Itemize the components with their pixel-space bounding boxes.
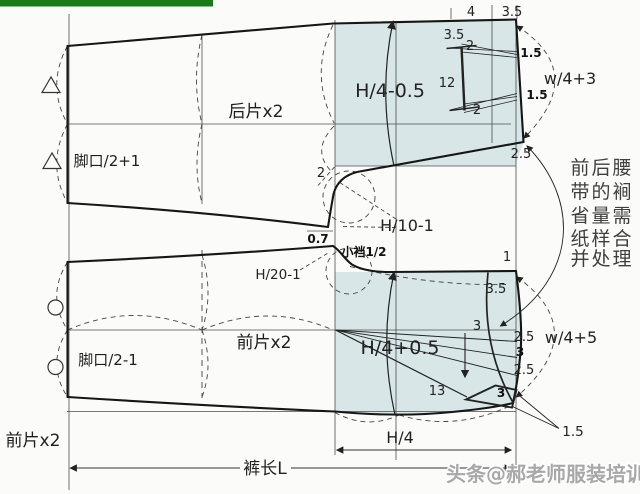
label-front-hem-formula: 脚口/2-1 xyxy=(78,351,138,369)
label-front-side-seg-a: 2.5 xyxy=(514,330,535,345)
dimension-lines xyxy=(71,450,512,468)
label-back-dart-offset: 3.5 xyxy=(444,28,465,43)
hem-ease-leader-lines xyxy=(513,394,560,429)
label-back-width-formula: H/4-0.5 xyxy=(355,80,425,102)
notch-symbols xyxy=(42,77,63,375)
note-line: 省量需 xyxy=(570,205,633,227)
label-front-cut-note: 前片x2 xyxy=(6,431,61,451)
pattern-drafting-canvas: 4 3.5 3.5 2 12 2 1.5 1.5 w/4+3 2.5 H/4-0… xyxy=(0,0,640,494)
label-back-dart-top-width: 2 xyxy=(466,39,474,54)
label-front-pocket-width: 3 xyxy=(497,386,505,400)
label-front-pocket-length: 13 xyxy=(429,384,446,399)
label-back-dart-bottom-width: 2 xyxy=(473,103,481,118)
front-knee-arcs xyxy=(202,255,208,397)
label-trouser-length-dim: 裤长L xyxy=(243,459,287,479)
note-line: 纸样合 xyxy=(570,228,633,250)
label-crotch-drop: 0.7 xyxy=(307,232,328,246)
label-front-hip-dim: 3 xyxy=(473,319,481,334)
label-front-side-seg-b: 3 xyxy=(516,345,524,359)
watermark-text: 头条@郝老师服装培训 xyxy=(446,462,640,486)
back-knee-arcs xyxy=(197,35,203,203)
label-back-waist-dim-4: 4 xyxy=(467,5,475,20)
label-hip-quarter-dim: H/4 xyxy=(386,428,414,447)
label-back-side-take-a: 1.5 xyxy=(520,46,541,60)
label-back-waist-formula: w/4+3 xyxy=(544,69,596,88)
note-line: 前后腰 xyxy=(570,157,633,179)
label-back-piece: 后片x2 xyxy=(229,102,284,122)
label-front-crotch-formula: H/20-1 xyxy=(255,267,300,283)
label-front-hem-ease: 1.5 xyxy=(562,424,583,440)
h20-leader-line xyxy=(300,253,329,271)
label-front-piece: 前片x2 xyxy=(237,333,292,353)
label-back-hem-formula: 脚口/2+1 xyxy=(74,152,141,170)
label-front-dart-offset: 3.5 xyxy=(486,282,507,297)
top-green-bar xyxy=(0,0,213,7)
note-line: 并处理 xyxy=(570,248,633,270)
back-inseam xyxy=(68,203,329,227)
label-front-waist-rise: 1 xyxy=(503,250,511,265)
label-back-dart-length: 12 xyxy=(439,76,456,91)
label-back-side-drop: 2.5 xyxy=(511,147,532,162)
label-back-waist-dim-35: 3.5 xyxy=(502,5,523,20)
front-hem-ease-arcs xyxy=(57,262,68,397)
trouser-pattern-diagram: 4 3.5 3.5 2 12 2 1.5 1.5 w/4+3 2.5 H/4-0… xyxy=(0,0,640,494)
waistband-note: 前后腰 带的裥 省量需 纸样合 并处理 xyxy=(570,157,633,270)
front-thigh-scallops xyxy=(68,316,334,331)
label-back-side-take-b: 1.5 xyxy=(526,88,547,102)
front-notch-circle-icon xyxy=(48,300,63,315)
label-back-corner-dim: 2 xyxy=(317,166,325,181)
back-notch-triangle-icon xyxy=(42,77,60,93)
back-crotch-scallops xyxy=(321,25,334,171)
label-front-waist-formula: w/4+5 xyxy=(545,328,597,347)
note-line: 带的裥 xyxy=(570,181,633,203)
back-hem-ease-arcs xyxy=(57,46,68,203)
front-inseam xyxy=(68,246,334,262)
back-notch-triangle-icon xyxy=(43,153,61,169)
label-front-side-seg-c: 2.5 xyxy=(514,363,535,378)
label-front-width-formula: H/4+0.5 xyxy=(361,337,440,359)
label-front-small-crotch: 小裆1/2 xyxy=(341,244,386,259)
front-notch-circle-icon xyxy=(48,360,63,375)
label-back-crotch-formula: H/10-1 xyxy=(380,216,434,235)
